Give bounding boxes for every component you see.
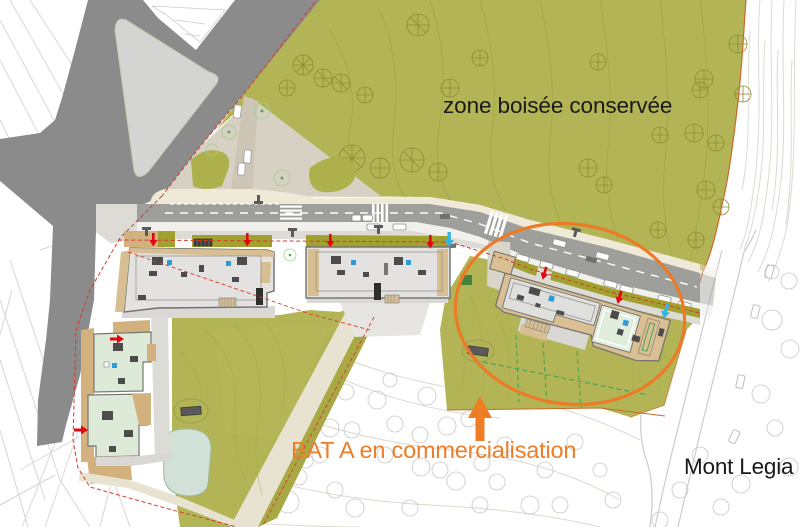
svg-text:Mont Legia: Mont Legia (684, 454, 794, 479)
svg-text:zone boisée conservée: zone boisée conservée (443, 93, 672, 118)
svg-text:BAT A en commercialisation: BAT A en commercialisation (291, 437, 576, 463)
